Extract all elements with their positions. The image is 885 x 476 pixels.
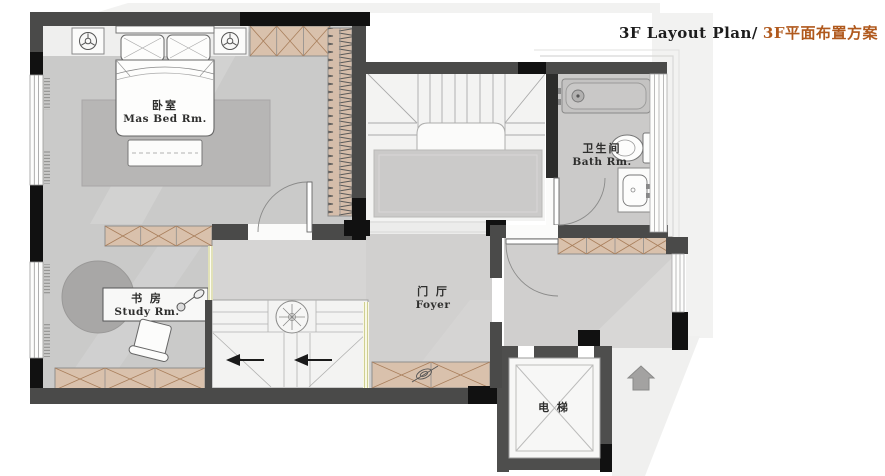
floor-plan-svg [0,0,885,476]
curtain-icon [44,264,50,294]
study-top-cabinet [105,226,212,246]
wardrobe [328,28,352,216]
nightstand-right [214,28,246,54]
table-lamp-icon [80,33,97,50]
bathtub [556,79,650,113]
title-zh: 3F平面布置方案 [763,24,878,42]
curtain-icon [44,78,50,110]
bedroom-closet [250,26,330,56]
foyer-cabinet [372,362,490,388]
page-title: 3F Layout Plan/3F平面布置方案 [619,22,878,43]
table-lamp-icon [222,33,239,50]
curtain-icon [44,150,50,184]
title-en: 3F Layout Plan/ [619,24,758,42]
nightstand-left [72,28,104,54]
toilet [611,133,653,163]
stairs-lower [212,300,368,388]
ceiling-lamp-icon [276,301,308,333]
curtain-icon [44,324,50,357]
floor-plan-page: 3F Layout Plan/3F平面布置方案 卧室 Mas Bed Rm. 书… [0,0,885,476]
cloakroom-cabinet [558,237,672,254]
cloakroom-window [672,254,684,312]
sink-vanity [618,168,652,212]
elevator [497,330,612,472]
bathroom-window [650,74,667,232]
bed-bench [128,140,202,166]
study-bottom-cabinet [55,368,205,390]
desk [103,288,208,321]
stair-hall-rug [374,150,542,217]
